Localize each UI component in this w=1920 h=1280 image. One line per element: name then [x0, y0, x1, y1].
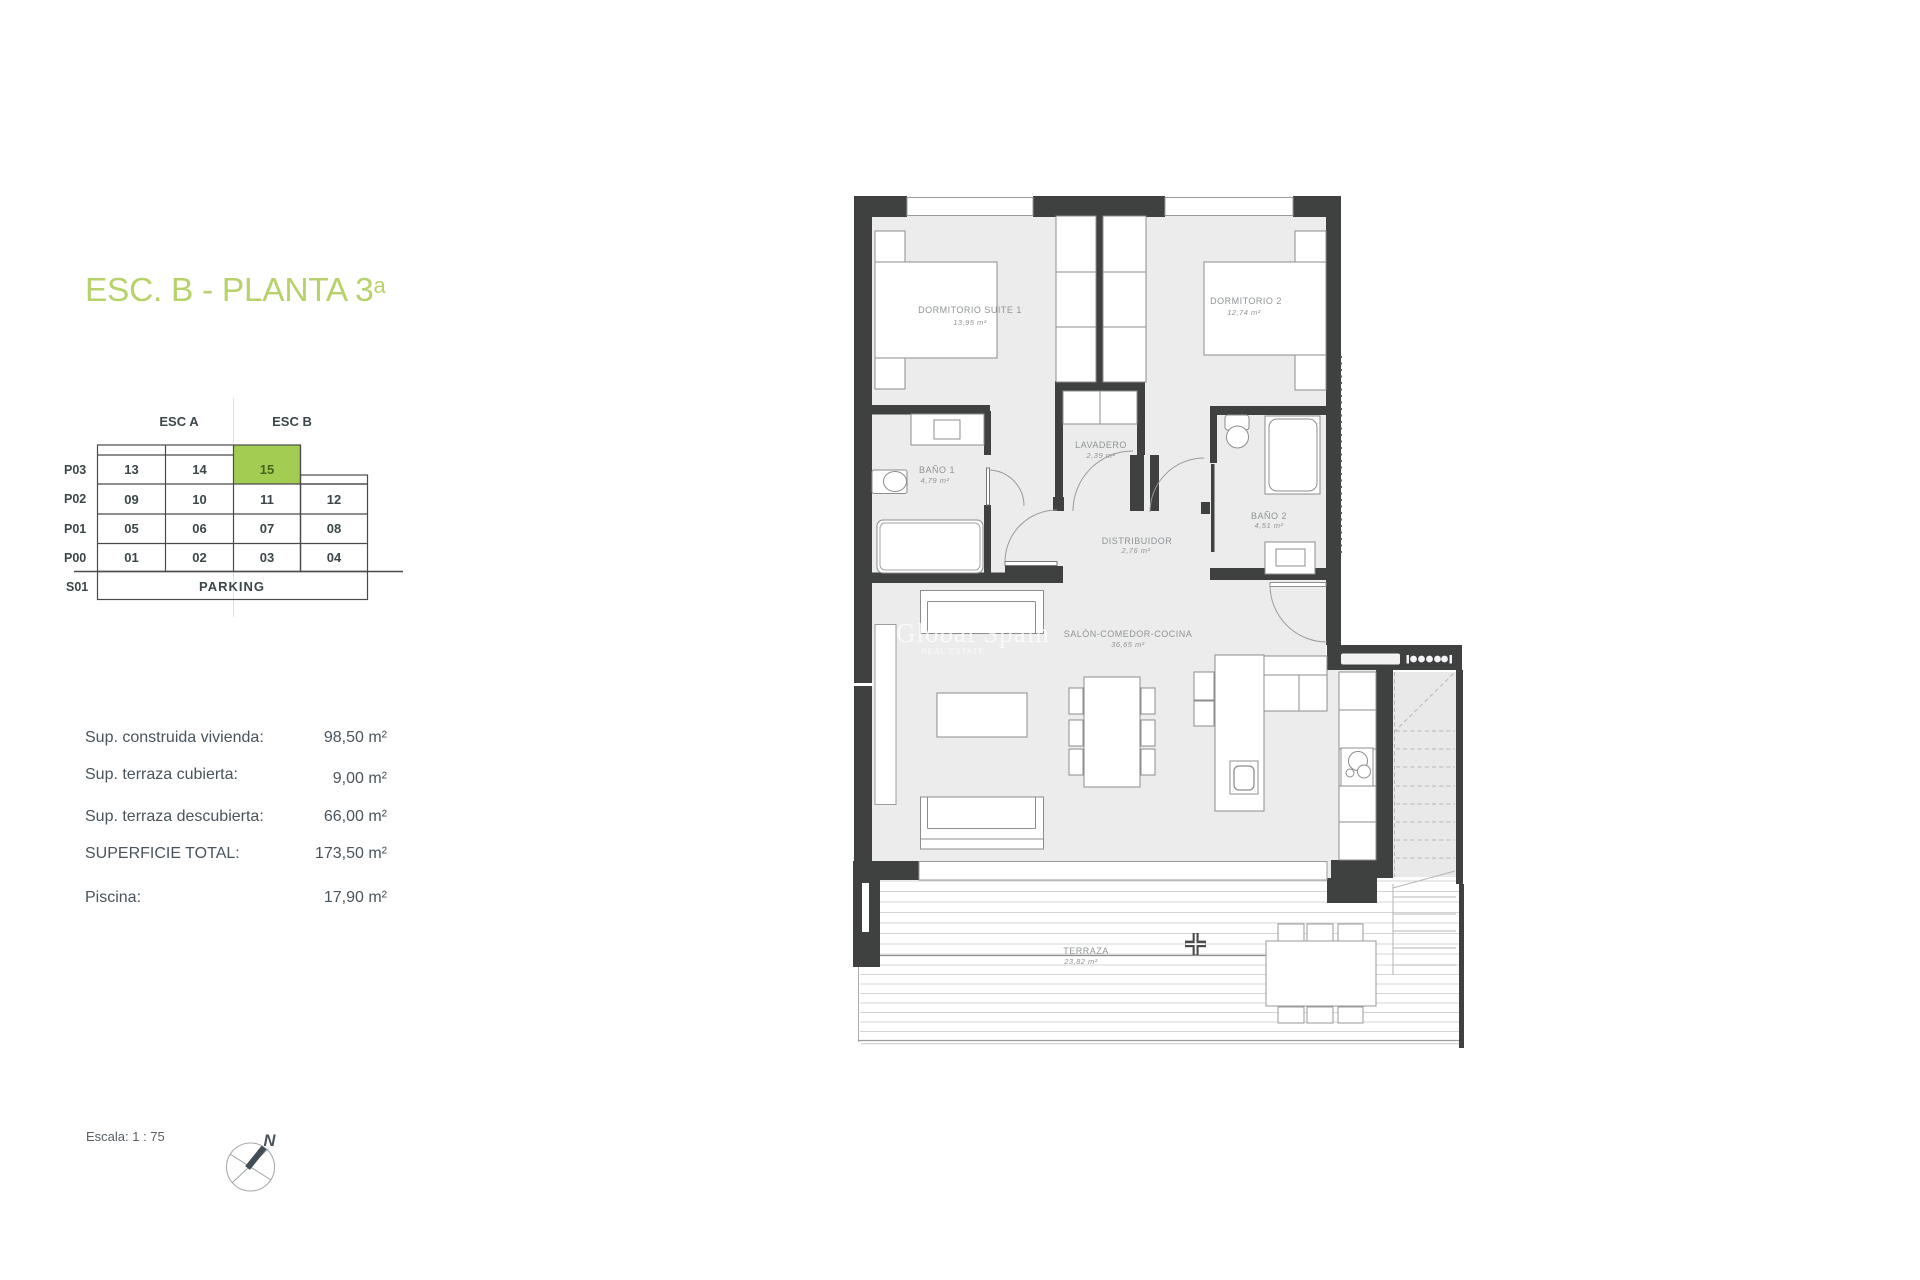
- svg-text:REAL ESTATE: REAL ESTATE: [921, 647, 985, 656]
- svg-text:TERRAZA: TERRAZA: [1063, 946, 1109, 956]
- svg-text:23,82 m²: 23,82 m²: [1063, 957, 1098, 966]
- svg-text:13,95 m²: 13,95 m²: [953, 318, 987, 327]
- svg-text:Global Spain: Global Spain: [896, 618, 1050, 648]
- svg-text:DISTRIBUIDOR: DISTRIBUIDOR: [1102, 536, 1173, 546]
- svg-text:DORMITORIO SUITE 1: DORMITORIO SUITE 1: [918, 305, 1022, 315]
- svg-text:2,76 m²: 2,76 m²: [1121, 546, 1151, 555]
- svg-text:4,79 m²: 4,79 m²: [921, 476, 950, 485]
- svg-text:LAVADERO: LAVADERO: [1075, 440, 1127, 450]
- svg-text:2,39 m²: 2,39 m²: [1086, 451, 1116, 460]
- svg-text:4,51 m²: 4,51 m²: [1255, 521, 1284, 530]
- svg-text:BAÑO 1: BAÑO 1: [919, 465, 955, 475]
- svg-text:12,74 m²: 12,74 m²: [1227, 308, 1261, 317]
- svg-text:DORMITORIO 2: DORMITORIO 2: [1210, 296, 1282, 306]
- svg-text:36,65 m²: 36,65 m²: [1111, 640, 1145, 649]
- svg-text:BAÑO 2: BAÑO 2: [1251, 511, 1287, 521]
- svg-text:SALÓN-COMEDOR-COCINA: SALÓN-COMEDOR-COCINA: [1064, 629, 1193, 639]
